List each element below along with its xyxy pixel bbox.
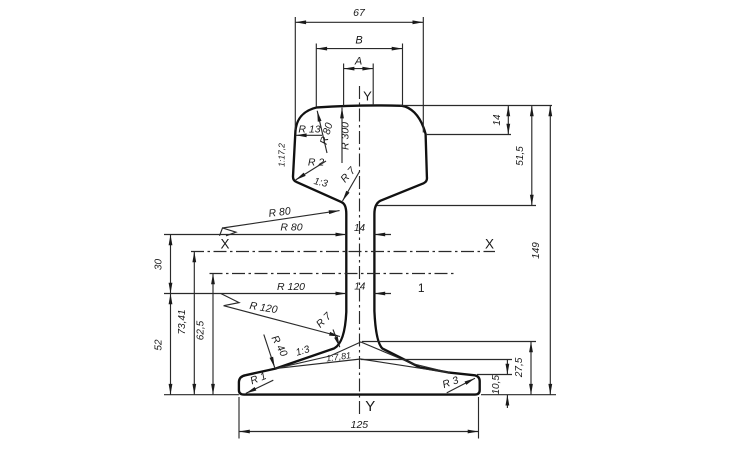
svg-text:67: 67 xyxy=(353,7,366,19)
svg-text:Y: Y xyxy=(363,89,372,104)
svg-text:1: 1 xyxy=(418,281,425,295)
svg-text:27,5: 27,5 xyxy=(514,357,525,378)
svg-text:R 2: R 2 xyxy=(308,157,325,169)
svg-text:14: 14 xyxy=(354,223,366,234)
svg-text:X: X xyxy=(485,237,494,252)
svg-text:125: 125 xyxy=(351,419,369,431)
svg-text:62,5: 62,5 xyxy=(196,320,207,340)
svg-text:R 300: R 300 xyxy=(340,122,352,150)
svg-text:R 80: R 80 xyxy=(280,222,302,234)
svg-text:73,41: 73,41 xyxy=(177,309,188,334)
svg-text:149: 149 xyxy=(531,242,542,259)
svg-text:10,5: 10,5 xyxy=(491,375,502,395)
svg-text:B: B xyxy=(355,35,362,47)
svg-text:52: 52 xyxy=(154,339,165,351)
svg-text:A: A xyxy=(354,56,362,68)
svg-text:14: 14 xyxy=(492,114,503,126)
svg-text:51,5: 51,5 xyxy=(515,146,526,166)
svg-text:14: 14 xyxy=(354,282,366,293)
svg-text:R 13: R 13 xyxy=(298,124,320,136)
svg-text:Y: Y xyxy=(365,398,375,415)
svg-text:1:17,2: 1:17,2 xyxy=(277,143,287,167)
svg-text:R 120: R 120 xyxy=(277,281,305,293)
svg-text:X: X xyxy=(220,237,229,252)
svg-text:30: 30 xyxy=(154,259,165,271)
